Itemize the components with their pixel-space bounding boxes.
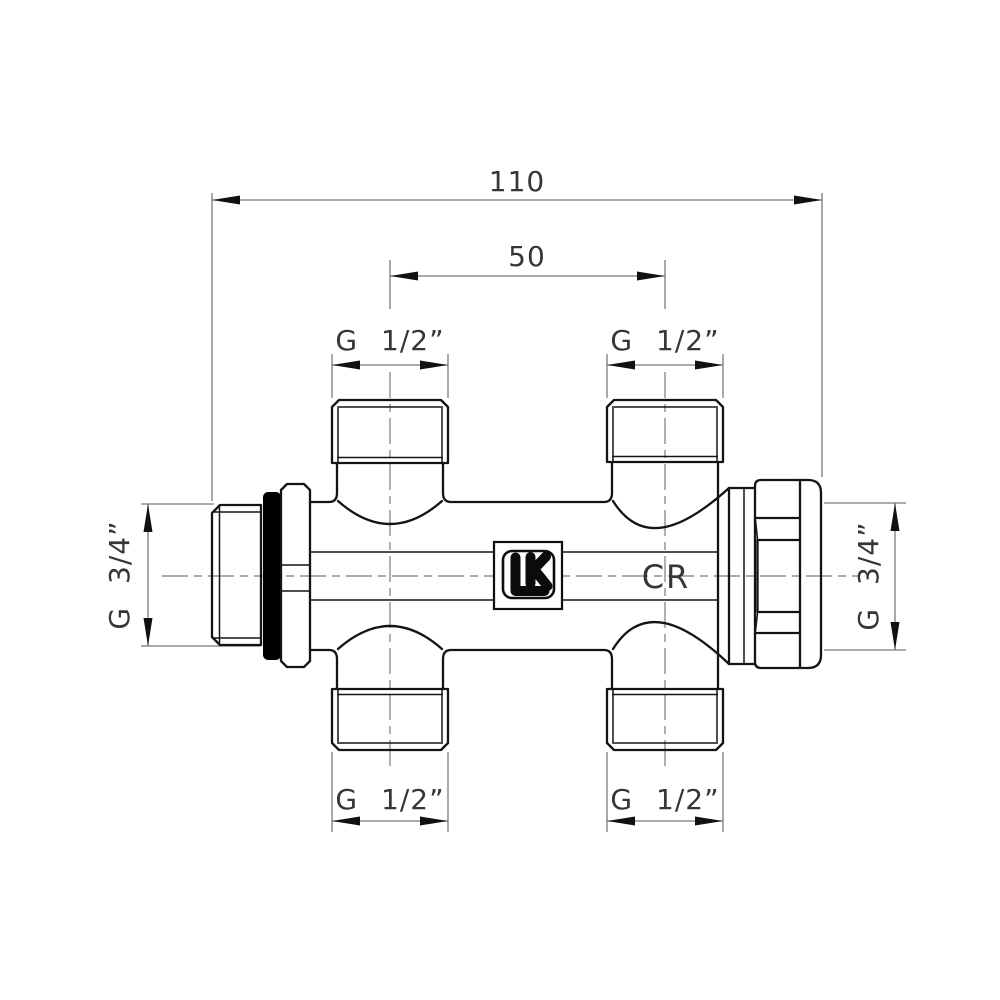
arrowhead-down	[891, 622, 900, 650]
body-marking-cr: CR	[642, 558, 691, 596]
body-top-edge-mid	[443, 462, 612, 502]
arrowhead-left	[332, 361, 360, 370]
thread-label-end-left: G 3/4”	[103, 520, 136, 629]
arrowhead-left	[212, 196, 240, 205]
thread-label-top-right: G 1/2”	[610, 324, 719, 357]
union-nut	[755, 480, 821, 668]
body-bottom-edge-left	[310, 650, 337, 689]
arrowhead-left	[390, 272, 418, 281]
arrowhead-left	[607, 817, 635, 826]
thread-label-bottom-right: G 1/2”	[610, 783, 719, 816]
nut-outline	[755, 480, 821, 668]
dimension-value-50: 50	[508, 240, 546, 273]
dimension-overall-length: 110	[212, 165, 822, 501]
dimension-end-right: G 3/4”	[824, 503, 906, 650]
arrowhead-right	[420, 817, 448, 826]
thread-label-top-left: G 1/2”	[335, 324, 444, 357]
arrowhead-up	[891, 503, 900, 531]
thread-label-end-right: G 3/4”	[852, 521, 885, 630]
intersection-arc-top-right	[613, 488, 729, 528]
arrowhead-right	[695, 817, 723, 826]
arrowhead-right	[794, 196, 822, 205]
arrowhead-right	[420, 361, 448, 370]
manifold-fitting-drawing: 110 50 G 1/2” G 1/2” G 1/2”	[0, 0, 1000, 1000]
left-end-male-thread	[212, 505, 261, 645]
arrowhead-right	[637, 272, 665, 281]
arrowhead-left	[332, 817, 360, 826]
dimension-value-110: 110	[489, 165, 545, 198]
body-bottom-edge-mid	[443, 650, 612, 689]
dimension-end-left: G 3/4”	[103, 504, 261, 646]
technical-drawing-page: 110 50 G 1/2” G 1/2” G 1/2”	[0, 0, 1000, 1000]
arrowhead-right	[695, 361, 723, 370]
thread-label-bottom-left: G 1/2”	[335, 783, 444, 816]
lk-logo	[494, 542, 562, 609]
seal-ring	[263, 492, 281, 660]
arrowhead-down	[144, 618, 153, 646]
dimension-port-spacing: 50	[390, 240, 665, 309]
intersection-arc-bottom-right	[613, 622, 729, 664]
body-top-edge-left	[310, 463, 337, 502]
arrowhead-up	[144, 504, 153, 532]
arrowhead-left	[607, 361, 635, 370]
